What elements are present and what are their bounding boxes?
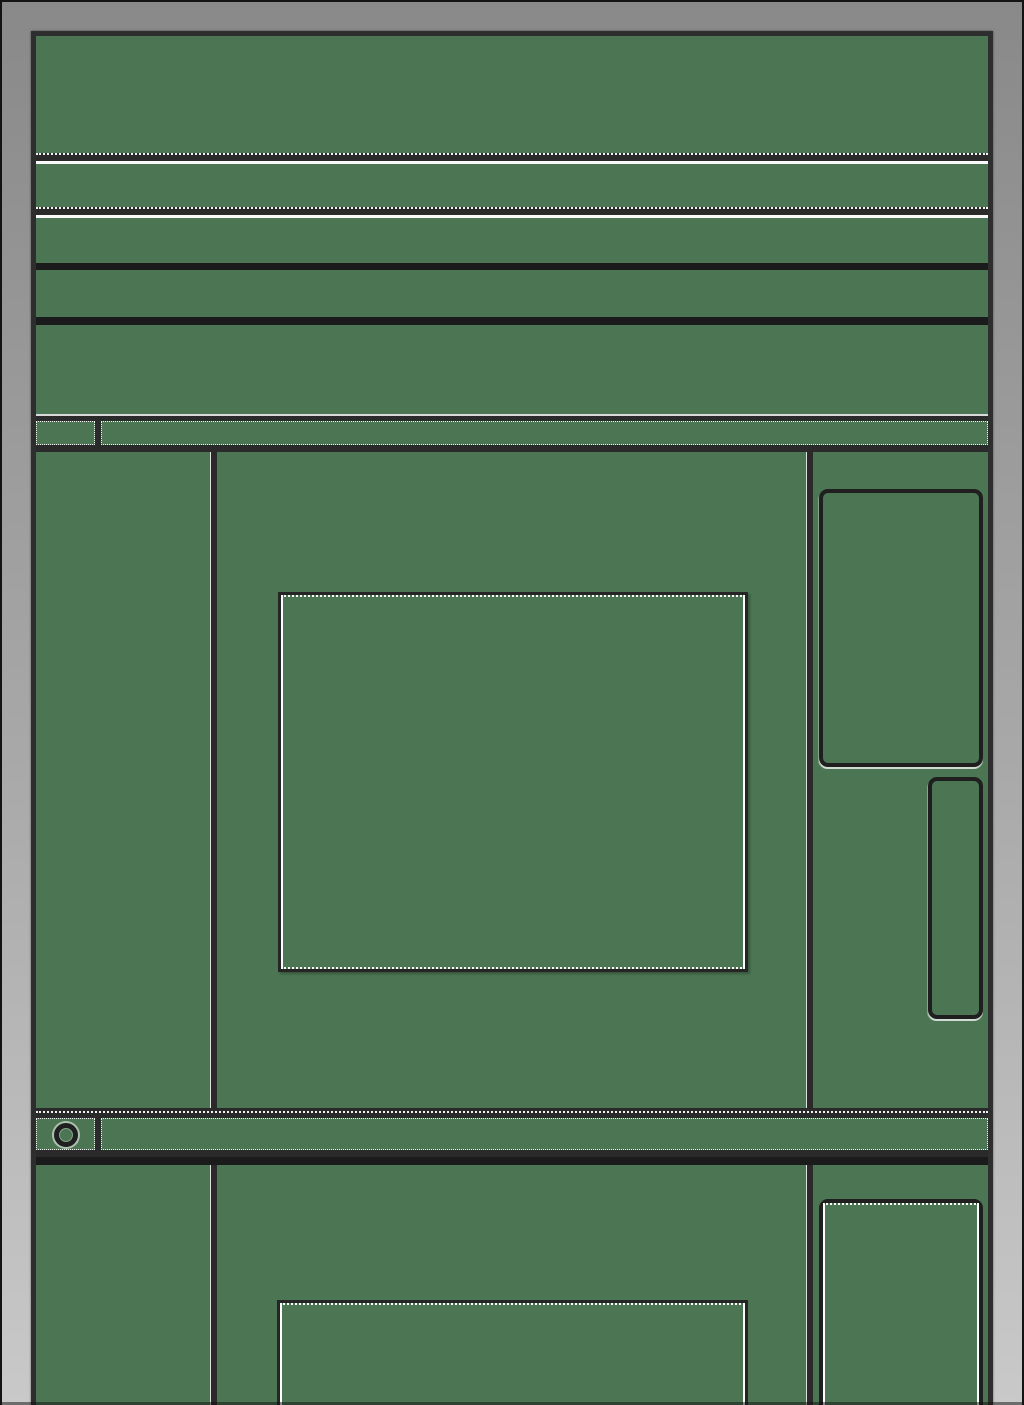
content-inset-box (278, 592, 748, 972)
tab-strip (36, 414, 988, 452)
divider-black-3 (36, 1157, 988, 1165)
menubar-area (36, 164, 988, 207)
window-frame-bezel (0, 0, 1024, 1405)
status-icon-cell (36, 1118, 95, 1150)
toolbar-area (36, 218, 988, 263)
left-sidebar-pane (36, 452, 210, 1108)
divider-black-2 (36, 317, 988, 325)
scrollbar-thumb[interactable] (928, 777, 983, 1019)
divider-black-1 (36, 263, 988, 270)
divider-etched-2 (36, 207, 988, 218)
pane-divider-right (806, 452, 813, 1108)
status-bar-highlight (36, 1111, 988, 1113)
status-bar (36, 1108, 988, 1157)
tab-cell-left[interactable] (36, 421, 95, 445)
side-rounded-panel (819, 489, 983, 767)
lower-pane-divider-right (806, 1165, 813, 1405)
window-content (36, 36, 988, 1405)
lower-pane-divider-left (210, 1165, 217, 1405)
application-window (31, 31, 993, 1405)
lower-content-inset-box (277, 1300, 748, 1405)
lower-side-rounded-panel (819, 1199, 983, 1405)
tab-cell-main[interactable] (101, 421, 988, 445)
secondary-toolbar-area (36, 270, 988, 317)
status-message-cell (101, 1118, 988, 1150)
status-ring-icon[interactable] (54, 1123, 78, 1147)
lower-section (36, 1165, 988, 1405)
pane-divider-left (210, 452, 217, 1108)
divider-etched-1 (36, 153, 988, 164)
title-area (36, 36, 988, 153)
banner-area (36, 325, 988, 414)
